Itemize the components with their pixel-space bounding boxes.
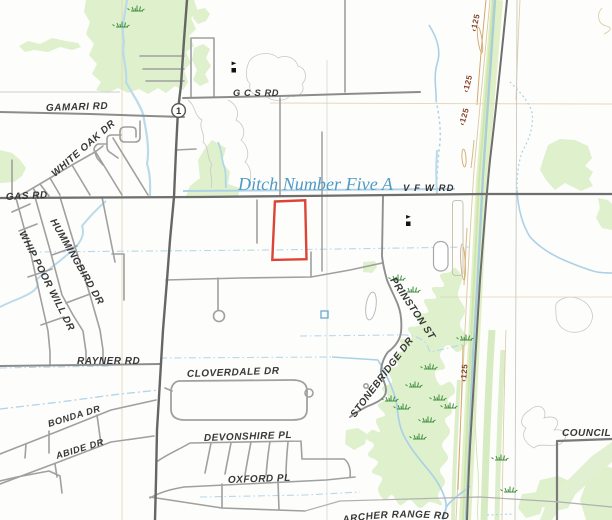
svg-text:V F W RD: V F W RD [403, 183, 455, 194]
svg-text:GAS RD: GAS RD [6, 190, 48, 203]
svg-text:‹125: ‹125 [459, 363, 470, 382]
svg-text:OXFORD PL: OXFORD PL [228, 473, 291, 486]
svg-text:RAYNER RD: RAYNER RD [77, 356, 140, 367]
svg-text:COUNCIL C: COUNCIL C [562, 428, 612, 439]
svg-text:Ditch Number Five A: Ditch Number Five A [237, 174, 394, 194]
svg-text:1: 1 [176, 106, 182, 117]
svg-text:GAMARI RD: GAMARI RD [46, 101, 109, 114]
svg-text:G C S RD: G C S RD [233, 88, 279, 98]
